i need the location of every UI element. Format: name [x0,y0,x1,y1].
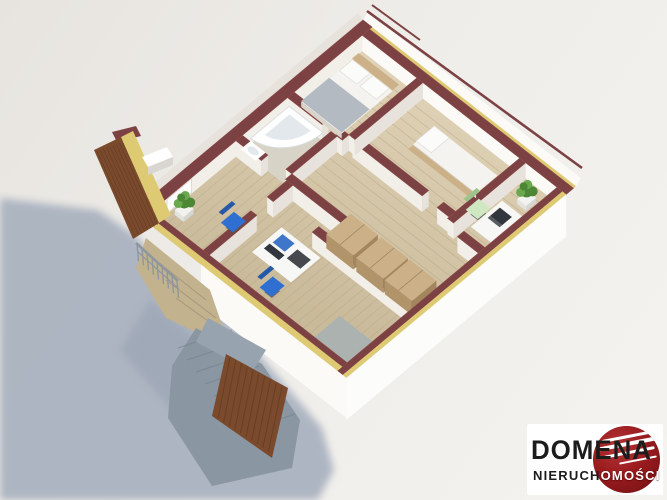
render-canvas: DOMENA NIERUCHOMOŚCI [0,0,667,500]
agency-logo: DOMENA NIERUCHOMOŚCI [527,424,663,495]
potted-plant-foliage [177,193,185,201]
logo-subtitle-text: NIERUCHOMOŚCI [533,468,661,483]
logo-subtitle-black: NIERUCH [533,468,601,483]
logo-brand-text: DOMENA [531,435,656,466]
potted-plant-foliage [520,182,528,190]
logo-subtitle-white: OMOŚCI [601,468,661,483]
